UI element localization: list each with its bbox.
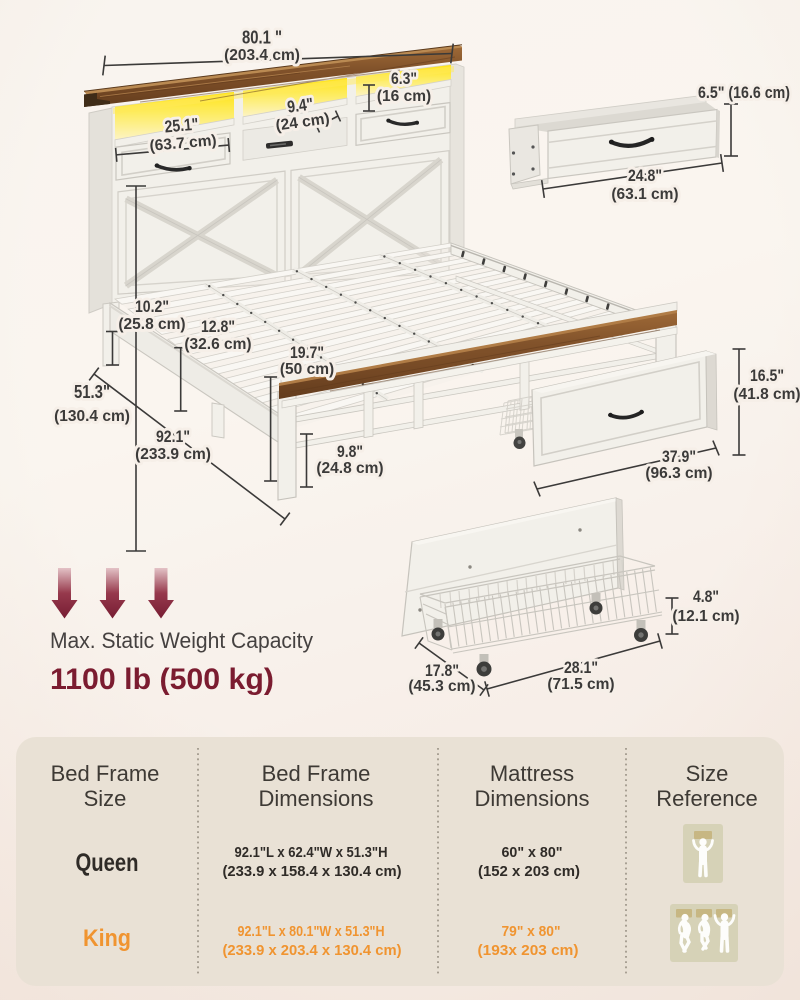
svg-text:1100 lb (500 kg): 1100 lb (500 kg) (50, 663, 274, 696)
svg-text:(24.8 cm): (24.8 cm) (316, 460, 383, 477)
svg-text:51.3": 51.3" (74, 382, 110, 402)
svg-text:(130.4 cm): (130.4 cm) (54, 408, 130, 425)
svg-text:Dimensions: Dimensions (259, 786, 374, 811)
svg-text:28.1": 28.1" (564, 658, 598, 677)
svg-text:Size: Size (84, 786, 127, 811)
svg-text:(193x 203 cm): (193x 203 cm) (478, 942, 579, 959)
svg-text:Bed Frame: Bed Frame (51, 761, 160, 786)
svg-text:Bed Frame: Bed Frame (262, 761, 371, 786)
svg-text:12.8": 12.8" (201, 317, 235, 336)
svg-text:(233.9 cm): (233.9 cm) (135, 446, 211, 463)
svg-text:(233.9 x 158.4 x 130.4 cm): (233.9 x 158.4 x 130.4 cm) (223, 863, 402, 880)
svg-text:(50 cm): (50 cm) (280, 361, 334, 378)
svg-text:10.2": 10.2" (135, 297, 169, 316)
svg-text:Size: Size (686, 761, 729, 786)
svg-text:19.7": 19.7" (290, 343, 324, 362)
svg-text:(96.3 cm): (96.3 cm) (645, 465, 712, 482)
svg-text:Mattress: Mattress (490, 761, 574, 786)
svg-text:(71.5 cm): (71.5 cm) (547, 676, 614, 693)
svg-text:(152 x 203 cm): (152 x 203 cm) (478, 863, 580, 880)
svg-text:16.5": 16.5" (750, 366, 784, 385)
svg-text:(63.1 cm): (63.1 cm) (611, 186, 678, 203)
svg-text:92.1"L x 62.4"W x 51.3"H: 92.1"L x 62.4"W x 51.3"H (235, 844, 388, 861)
svg-text:(41.8 cm): (41.8 cm) (733, 386, 800, 403)
svg-text:60" x 80": 60" x 80" (502, 844, 563, 861)
svg-text:6.5" (16.6 cm): 6.5" (16.6 cm) (698, 84, 790, 102)
svg-text:92.1"L x 80.1"W x 51.3"H: 92.1"L x 80.1"W x 51.3"H (238, 923, 385, 940)
svg-text:Max. Static Weight Capacity: Max. Static Weight Capacity (50, 628, 313, 653)
svg-text:4.8": 4.8" (693, 587, 719, 606)
svg-text:(16 cm): (16 cm) (377, 88, 431, 105)
svg-text:(32.6 cm): (32.6 cm) (184, 336, 251, 353)
svg-text:80.1 ": 80.1 " (242, 28, 282, 48)
svg-text:24.8": 24.8" (628, 166, 662, 185)
svg-text:(12.1 cm): (12.1 cm) (672, 608, 739, 625)
svg-text:Dimensions: Dimensions (475, 786, 590, 811)
svg-text:79" x 80": 79" x 80" (502, 923, 561, 940)
svg-text:Reference: Reference (656, 786, 758, 811)
svg-text:37.9": 37.9" (662, 447, 696, 466)
svg-text:(25.8 cm): (25.8 cm) (118, 316, 185, 333)
svg-text:(45.3 cm): (45.3 cm) (408, 678, 475, 695)
svg-text:9.8": 9.8" (337, 442, 363, 461)
svg-text:6.3": 6.3" (391, 69, 417, 88)
svg-text:Queen: Queen (76, 849, 139, 877)
svg-text:King: King (83, 925, 131, 952)
svg-text:(233.9 x 203.4 x 130.4 cm): (233.9 x 203.4 x 130.4 cm) (223, 942, 402, 959)
svg-text:92.1": 92.1" (156, 427, 190, 446)
svg-text:(203.4 cm): (203.4 cm) (224, 47, 300, 64)
